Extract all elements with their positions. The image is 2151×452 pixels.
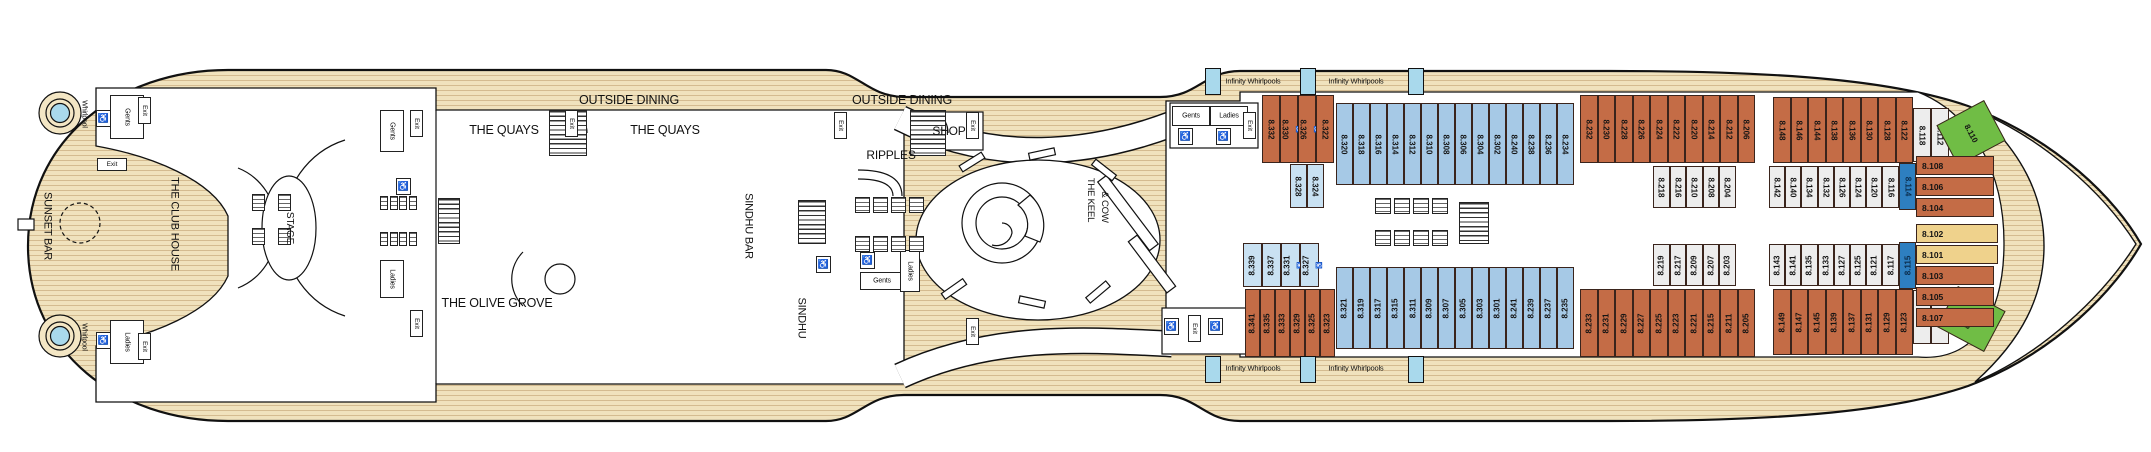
cabin-8.239: 8.239 (1523, 267, 1540, 349)
cabin-8.210: 8.210 (1686, 166, 1703, 208)
lift-icon (399, 232, 407, 246)
infinity-whirlpool-tub (1300, 68, 1316, 95)
cabin-8.215: 8.215 (1703, 289, 1721, 357)
staircase-icon (1459, 202, 1489, 244)
cabin-8.314: 8.314 (1387, 103, 1404, 185)
label-infinity: Infinity Whirlpools (1329, 77, 1384, 85)
cabin-8.306: 8.306 (1455, 103, 1472, 185)
cabin-8.117: 8.117 (1882, 244, 1898, 286)
lift-icon (1413, 198, 1429, 214)
cabin-8.142: 8.142 (1769, 166, 1785, 208)
cabin-8.122: 8.122 (1896, 97, 1914, 163)
cabin-8.135: 8.135 (1801, 244, 1817, 286)
cabin-8.214: 8.214 (1703, 95, 1721, 163)
exit-marker: Exit (97, 158, 127, 171)
cabin-8.204: 8.204 (1719, 166, 1736, 208)
label-gents: Gents (1182, 113, 1200, 120)
lift-icon (855, 236, 870, 252)
cabin-8.221: 8.221 (1685, 289, 1703, 357)
label-shop: SHOP (932, 125, 965, 137)
cabin-8.229: 8.229 (1615, 289, 1633, 357)
cabin-8.228: 8.228 (1615, 95, 1633, 163)
cabin-8.102: 8.102 (1916, 224, 1998, 243)
label-ripples: RIPPLES (866, 149, 915, 161)
wheelchair-accessible-icon: ♿ (1164, 318, 1179, 335)
cabin-8.241: 8.241 (1506, 267, 1523, 349)
cabin-8.222: 8.222 (1668, 95, 1686, 163)
label-stage: STAGE (284, 212, 294, 244)
cabin-8.226: 8.226 (1633, 95, 1651, 163)
lift-icon (399, 196, 407, 210)
exit-marker: Exit (138, 97, 151, 124)
deck-plan: 8.3328.330♿8.326♿8.3228.3208.3188.3168.3… (0, 0, 2151, 452)
label-infinity: Infinity Whirlpools (1226, 364, 1281, 372)
cabin-8.301: 8.301 (1489, 267, 1506, 349)
deck-plan-drawing (0, 0, 2151, 452)
label-quays: THE QUAYS (630, 124, 700, 137)
wheelchair-accessible-icon: ♿ (396, 178, 411, 195)
cabin-8.335: 8.335 (1260, 289, 1275, 357)
cabin-8.333: 8.333 (1275, 289, 1290, 357)
cabin-8.114: 8.114 (1899, 163, 1916, 210)
cabin-8.236: 8.236 (1540, 103, 1557, 185)
label-keel: THE KEEL (1085, 178, 1095, 222)
cabin-8.339: 8.339 (1243, 243, 1262, 287)
exit-marker: Exit (966, 112, 979, 139)
cabin-8.337: 8.337 (1262, 243, 1281, 287)
label-whirlpool: Whirlpool (81, 100, 88, 127)
cabin-8.235: 8.235 (1557, 267, 1574, 349)
cabin-8.129: 8.129 (1878, 289, 1896, 355)
cabin-8.127: 8.127 (1834, 244, 1850, 286)
cabin-8.134: 8.134 (1801, 166, 1817, 208)
label-sindhu: SINDHU (796, 298, 807, 339)
cabin-8.101: 8.101 (1916, 245, 1998, 264)
cabin-8.325: 8.325 (1305, 289, 1320, 357)
cabin-8.103: 8.103 (1916, 266, 1994, 285)
label-infinity: Infinity Whirlpools (1329, 364, 1384, 372)
cabin-8.138: 8.138 (1826, 97, 1844, 163)
cabin-8.324: 8.324 (1307, 164, 1324, 208)
cabin-8.130: 8.130 (1861, 97, 1879, 163)
cabin-8.322: 8.322 (1316, 95, 1334, 163)
cabin-8.217: 8.217 (1670, 244, 1687, 286)
label-olive_grove: THE OLIVE GROVE (442, 297, 553, 310)
cabin-8.220: 8.220 (1685, 95, 1703, 163)
exit-marker: Exit (1188, 315, 1201, 342)
label-sunset_bar: SUNSET BAR (42, 192, 53, 260)
cabin-8.305: 8.305 (1455, 267, 1472, 349)
cabin-8.203: 8.203 (1719, 244, 1736, 286)
label-ladies: Ladies (389, 269, 396, 288)
label-ladies: Ladies (1219, 113, 1238, 120)
lift-icon (1394, 230, 1410, 246)
staircase-icon (438, 198, 460, 244)
wheelchair-accessible-icon: ♿ (1208, 318, 1223, 335)
cabin-8.131: 8.131 (1861, 289, 1879, 355)
infinity-whirlpool-tub (1408, 68, 1424, 95)
cabin-8.107: 8.107 (1916, 308, 1994, 327)
cabin-8.140: 8.140 (1785, 166, 1801, 208)
lift-icon (409, 232, 417, 246)
cabin-8.148: 8.148 (1773, 97, 1791, 163)
exit-marker: Exit (966, 318, 979, 345)
cabin-8.312: 8.312 (1404, 103, 1421, 185)
cabin-8.149: 8.149 (1773, 289, 1791, 355)
exit-marker: Exit (410, 310, 423, 337)
lift-icon (390, 232, 398, 246)
cabin-8.224: 8.224 (1650, 95, 1668, 163)
cabin-8.234: 8.234 (1557, 103, 1574, 185)
cabin-8.233: 8.233 (1580, 289, 1598, 357)
cabin-8.329: 8.329 (1290, 289, 1305, 357)
label-ladies: Ladies (124, 332, 131, 351)
wheelchair-accessible-icon: ♿ (96, 332, 111, 349)
cabin-8.143: 8.143 (1769, 244, 1785, 286)
cabin-8.225: 8.225 (1650, 289, 1668, 357)
cabin-8.147: 8.147 (1791, 289, 1809, 355)
lift-icon (891, 197, 906, 213)
label-gents: Gents (124, 108, 131, 126)
lift-icon (1375, 230, 1391, 246)
cabin-8.205: 8.205 (1738, 289, 1756, 357)
label-quays: THE QUAYS (469, 124, 539, 137)
cabin-8.106: 8.106 (1916, 177, 1994, 196)
cabin-8.316: 8.316 (1370, 103, 1387, 185)
cabin-8.315: 8.315 (1387, 267, 1404, 349)
cabin-8.212: 8.212 (1720, 95, 1738, 163)
cabin-8.227: 8.227 (1633, 289, 1651, 357)
exit-marker: Exit (138, 333, 151, 360)
lift-icon (252, 228, 265, 245)
label-ladies: Ladies (907, 261, 914, 280)
cabin-8.309: 8.309 (1421, 267, 1438, 349)
cabin-8.144: 8.144 (1808, 97, 1826, 163)
wheelchair-accessible-icon: ♿ (1178, 128, 1193, 145)
lift-icon (1413, 230, 1429, 246)
cabin-8.237: 8.237 (1540, 267, 1557, 349)
lift-icon (252, 194, 265, 211)
label-cow: & COW (1099, 191, 1109, 222)
cabin-8.145: 8.145 (1808, 289, 1826, 355)
cabin-8.223: 8.223 (1668, 289, 1686, 357)
wheelchair-accessible-icon: ♿ (96, 110, 111, 127)
label-whirlpool: Whirlpool (81, 323, 88, 350)
cabin-8.231: 8.231 (1598, 289, 1616, 357)
cabin-8.330: 8.330♿ (1280, 95, 1298, 163)
cabin-8.118: 8.118 (1913, 108, 1931, 162)
cabin-8.320: 8.320 (1336, 103, 1353, 185)
cabin-8.302: 8.302 (1489, 103, 1506, 185)
lift-icon (873, 197, 888, 213)
cabin-8.136: 8.136 (1843, 97, 1861, 163)
infinity-whirlpool-tub (1205, 68, 1221, 95)
lift-icon (390, 196, 398, 210)
cabin-8.326: 8.326♿ (1298, 95, 1316, 163)
cabin-8.218: 8.218 (1653, 166, 1670, 208)
cabin-8.230: 8.230 (1598, 95, 1616, 163)
cabin-8.126: 8.126 (1834, 166, 1850, 208)
cabin-8.139: 8.139 (1826, 289, 1844, 355)
lift-icon (1432, 198, 1448, 214)
cabin-8.328: 8.328 (1290, 164, 1307, 208)
cabin-8.120: 8.120 (1866, 166, 1882, 208)
lift-icon (1432, 230, 1448, 246)
label-infinity: Infinity Whirlpools (1226, 77, 1281, 85)
label-sindhu_bar: SINDHU BAR (743, 193, 754, 259)
lift-icon (1375, 198, 1391, 214)
cabin-8.318: 8.318 (1353, 103, 1370, 185)
wheelchair-accessible-icon: ♿ (860, 252, 875, 269)
exit-marker: Exit (565, 110, 578, 137)
label-club_house: THE CLUB HOUSE (169, 177, 180, 271)
cabin-8.331: 8.331♿ (1281, 243, 1300, 287)
label-outside_dining: OUTSIDE DINING (579, 94, 679, 107)
cabin-8.238: 8.238 (1523, 103, 1540, 185)
lift-icon (380, 232, 388, 246)
cabin-8.219: 8.219 (1653, 244, 1670, 286)
cabin-8.206: 8.206 (1738, 95, 1756, 163)
exit-marker: Exit (410, 110, 423, 137)
cabin-8.137: 8.137 (1843, 289, 1861, 355)
cabin-8.319: 8.319 (1353, 267, 1370, 349)
cabin-8.311: 8.311 (1404, 267, 1421, 349)
infinity-whirlpool-tub (1205, 356, 1221, 383)
cabin-8.240: 8.240 (1506, 103, 1523, 185)
cabin-8.310: 8.310 (1421, 103, 1438, 185)
staircase-icon (798, 200, 826, 244)
cabin-8.232: 8.232 (1580, 95, 1598, 163)
lift-icon (278, 194, 291, 211)
infinity-whirlpool-tub (1408, 356, 1424, 383)
cabin-8.108: 8.108 (1916, 156, 1994, 175)
cabin-8.208: 8.208 (1703, 166, 1720, 208)
cabin-8.307: 8.307 (1438, 267, 1455, 349)
cabin-8.207: 8.207 (1703, 244, 1720, 286)
cabin-8.141: 8.141 (1785, 244, 1801, 286)
label-gents: Gents (389, 122, 396, 140)
cabin-8.115: 8.115 (1899, 242, 1916, 289)
lift-icon (909, 197, 924, 213)
cabin-8.209: 8.209 (1686, 244, 1703, 286)
cabin-8.104: 8.104 (1916, 198, 1994, 217)
wheelchair-accessible-icon: ♿ (1216, 128, 1231, 145)
exit-marker: Exit (834, 112, 847, 139)
lift-icon (909, 236, 924, 252)
cabin-8.123: 8.123 (1896, 289, 1914, 355)
cabin-8.121: 8.121 (1866, 244, 1882, 286)
cabin-8.341: 8.341 (1245, 289, 1260, 357)
lift-icon (409, 196, 417, 210)
cabin-8.133: 8.133 (1818, 244, 1834, 286)
cabin-8.317: 8.317 (1370, 267, 1387, 349)
cabin-8.308: 8.308 (1438, 103, 1455, 185)
infinity-whirlpool-tub (1300, 356, 1316, 383)
cabin-8.321: 8.321 (1336, 267, 1353, 349)
cabin-8.332: 8.332 (1262, 95, 1280, 163)
cabin-8.128: 8.128 (1878, 97, 1896, 163)
lift-icon (873, 236, 888, 252)
cabin-8.146: 8.146 (1791, 97, 1809, 163)
cabin-8.327: 8.327♿ (1300, 243, 1319, 287)
cabin-8.124: 8.124 (1850, 166, 1866, 208)
cabin-8.132: 8.132 (1818, 166, 1834, 208)
cabin-8.216: 8.216 (1670, 166, 1687, 208)
lift-icon (1394, 198, 1410, 214)
cabin-8.303: 8.303 (1472, 267, 1489, 349)
label-gents: Gents (873, 278, 891, 285)
lift-icon (855, 197, 870, 213)
cabin-8.105: 8.105 (1916, 287, 1994, 306)
wheelchair-accessible-icon: ♿ (816, 256, 831, 273)
wheelchair-accessible-icon: ♿ (1316, 261, 1323, 268)
lift-icon (380, 196, 388, 210)
cabin-8.125: 8.125 (1850, 244, 1866, 286)
exit-marker: Exit (1243, 112, 1256, 139)
label-outside_dining: OUTSIDE DINING (852, 94, 952, 107)
cabin-8.116: 8.116 (1882, 166, 1898, 208)
cabin-8.323: 8.323 (1320, 289, 1335, 357)
lift-icon (891, 236, 906, 252)
cabin-8.304: 8.304 (1472, 103, 1489, 185)
cabin-8.211: 8.211 (1720, 289, 1738, 357)
